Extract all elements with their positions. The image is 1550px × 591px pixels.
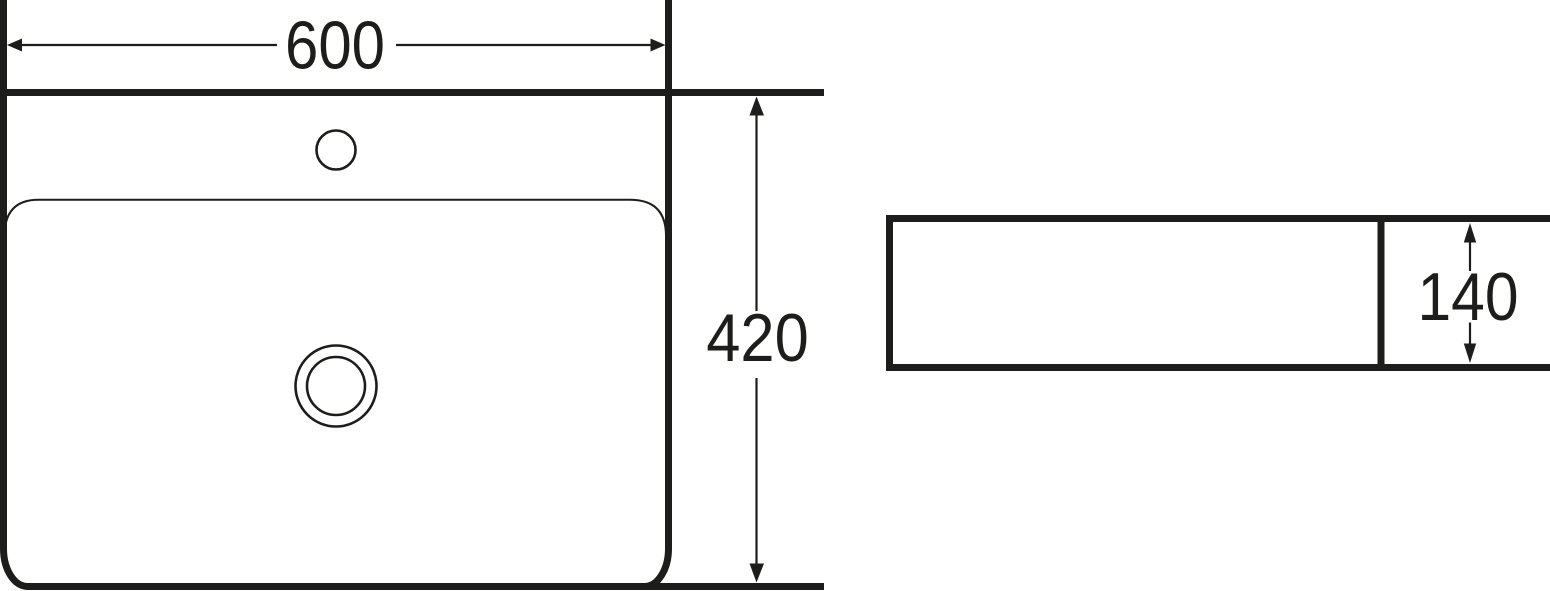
- svg-text:420: 420: [706, 300, 809, 376]
- svg-text:140: 140: [1418, 259, 1519, 335]
- svg-text:600: 600: [285, 8, 385, 84]
